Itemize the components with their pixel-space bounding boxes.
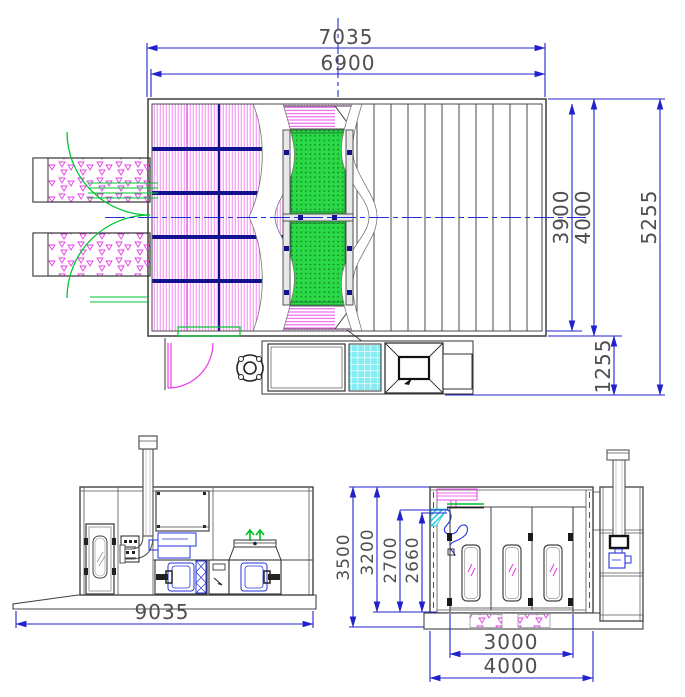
dim-label-machine-bay-depth: 1255 <box>591 339 615 394</box>
stack-cap <box>139 436 157 449</box>
exhaust-fan-throat <box>399 357 429 379</box>
intake-duct-top-cap <box>33 158 48 202</box>
supply-fan-unit <box>155 560 207 594</box>
fan-housing-box <box>268 344 345 391</box>
heat-exchanger-grid <box>349 344 381 391</box>
stack-connector <box>610 536 628 548</box>
dim-label-body-height: 3200 <box>358 528 378 575</box>
dim-label-inner-height-b: 2660 <box>403 536 423 583</box>
side-elevation: 9035 <box>13 436 316 628</box>
machine-bay <box>237 341 473 394</box>
drawing-canvas: 7035 6900 3900 4000 5255 1255 <box>0 0 685 697</box>
intake-duct-bottom-cap <box>33 233 48 276</box>
exhaust-fan-side <box>229 530 281 594</box>
personnel-door <box>84 524 116 594</box>
pump-module-box <box>209 560 229 594</box>
service-door-swing-arc <box>168 343 213 388</box>
side-tower <box>593 450 643 621</box>
exhaust-pit-left <box>470 615 502 628</box>
entry-door-leaf-bottom <box>90 297 147 302</box>
stack-duct <box>143 449 153 536</box>
pump-module <box>209 560 229 594</box>
intake-duct-top <box>33 158 150 202</box>
dim-label-overall-height: 3500 <box>334 533 354 580</box>
dim-label-inner-height-a: 2700 <box>381 536 401 583</box>
exhaust-hood-bolt <box>253 542 257 546</box>
plan-view: 7035 6900 3900 4000 5255 1255 <box>33 18 665 395</box>
door-window-1 <box>462 545 480 601</box>
front-elevation: 3500 3200 2700 2660 3000 4000 <box>334 450 643 682</box>
tower-stack-cap <box>607 450 629 460</box>
door-window-2 <box>503 545 521 601</box>
dim-label-overall-width: 7035 <box>319 25 374 49</box>
dim-label-booth-depth: 4000 <box>571 190 595 245</box>
exhaust-fan-unit <box>385 343 443 393</box>
discharge-duct <box>443 354 472 389</box>
dim-label-inner-width: 6900 <box>321 51 376 75</box>
exhaust-pit-right <box>518 615 550 628</box>
stack-flange <box>120 545 125 563</box>
service-door-leaf <box>168 343 171 388</box>
dim-label-overall-length: 9035 <box>135 600 190 624</box>
dim-label-overall-width-front: 4000 <box>484 654 539 678</box>
intake-duct-top-body <box>33 158 150 202</box>
door-window-3 <box>544 545 562 601</box>
tower-stack-duct <box>613 460 625 536</box>
tower-link-lines <box>593 492 600 530</box>
dim-label-overall-depth: 5255 <box>637 190 661 245</box>
air-plenum <box>156 491 209 531</box>
dim-label-door-opening-width: 3000 <box>484 630 539 654</box>
blower-inlet-inner <box>244 362 256 374</box>
spray-booth-technical-drawing: 7035 6900 3900 4000 5255 1255 <box>0 0 685 697</box>
dim-label-inner-depth: 3900 <box>549 190 573 245</box>
